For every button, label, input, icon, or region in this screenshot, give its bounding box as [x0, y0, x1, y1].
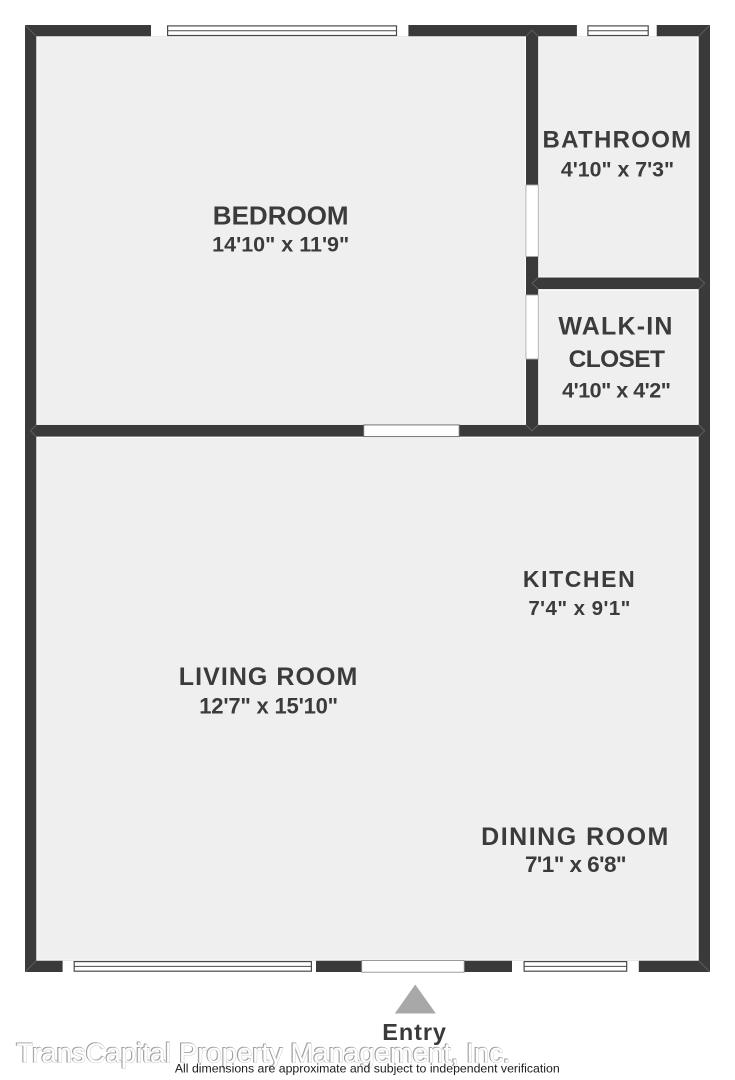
svg-text:LIVING ROOM: LIVING ROOM: [179, 663, 359, 691]
svg-text:CLOSET: CLOSET: [569, 346, 665, 373]
svg-text:14'10" x 11'9": 14'10" x 11'9": [212, 232, 349, 256]
svg-text:4'10" x 4'2": 4'10" x 4'2": [562, 379, 670, 403]
svg-text:WALK-IN: WALK-IN: [558, 313, 673, 341]
svg-text:7'1" x 6'8": 7'1" x 6'8": [525, 852, 626, 877]
svg-text:BATHROOM: BATHROOM: [543, 127, 693, 154]
svg-text:4'10" x 7'3": 4'10" x 7'3": [561, 157, 674, 181]
svg-text:BEDROOM: BEDROOM: [213, 200, 349, 230]
svg-text:12'7" x 15'10": 12'7" x 15'10": [199, 694, 338, 719]
svg-text:All dimensions are approximate: All dimensions are approximate and subje…: [175, 1061, 560, 1075]
svg-text:DINING ROOM: DINING ROOM: [481, 823, 670, 851]
svg-text:7'4" x 9'1": 7'4" x 9'1": [528, 597, 631, 620]
svg-text:KITCHEN: KITCHEN: [523, 566, 636, 592]
